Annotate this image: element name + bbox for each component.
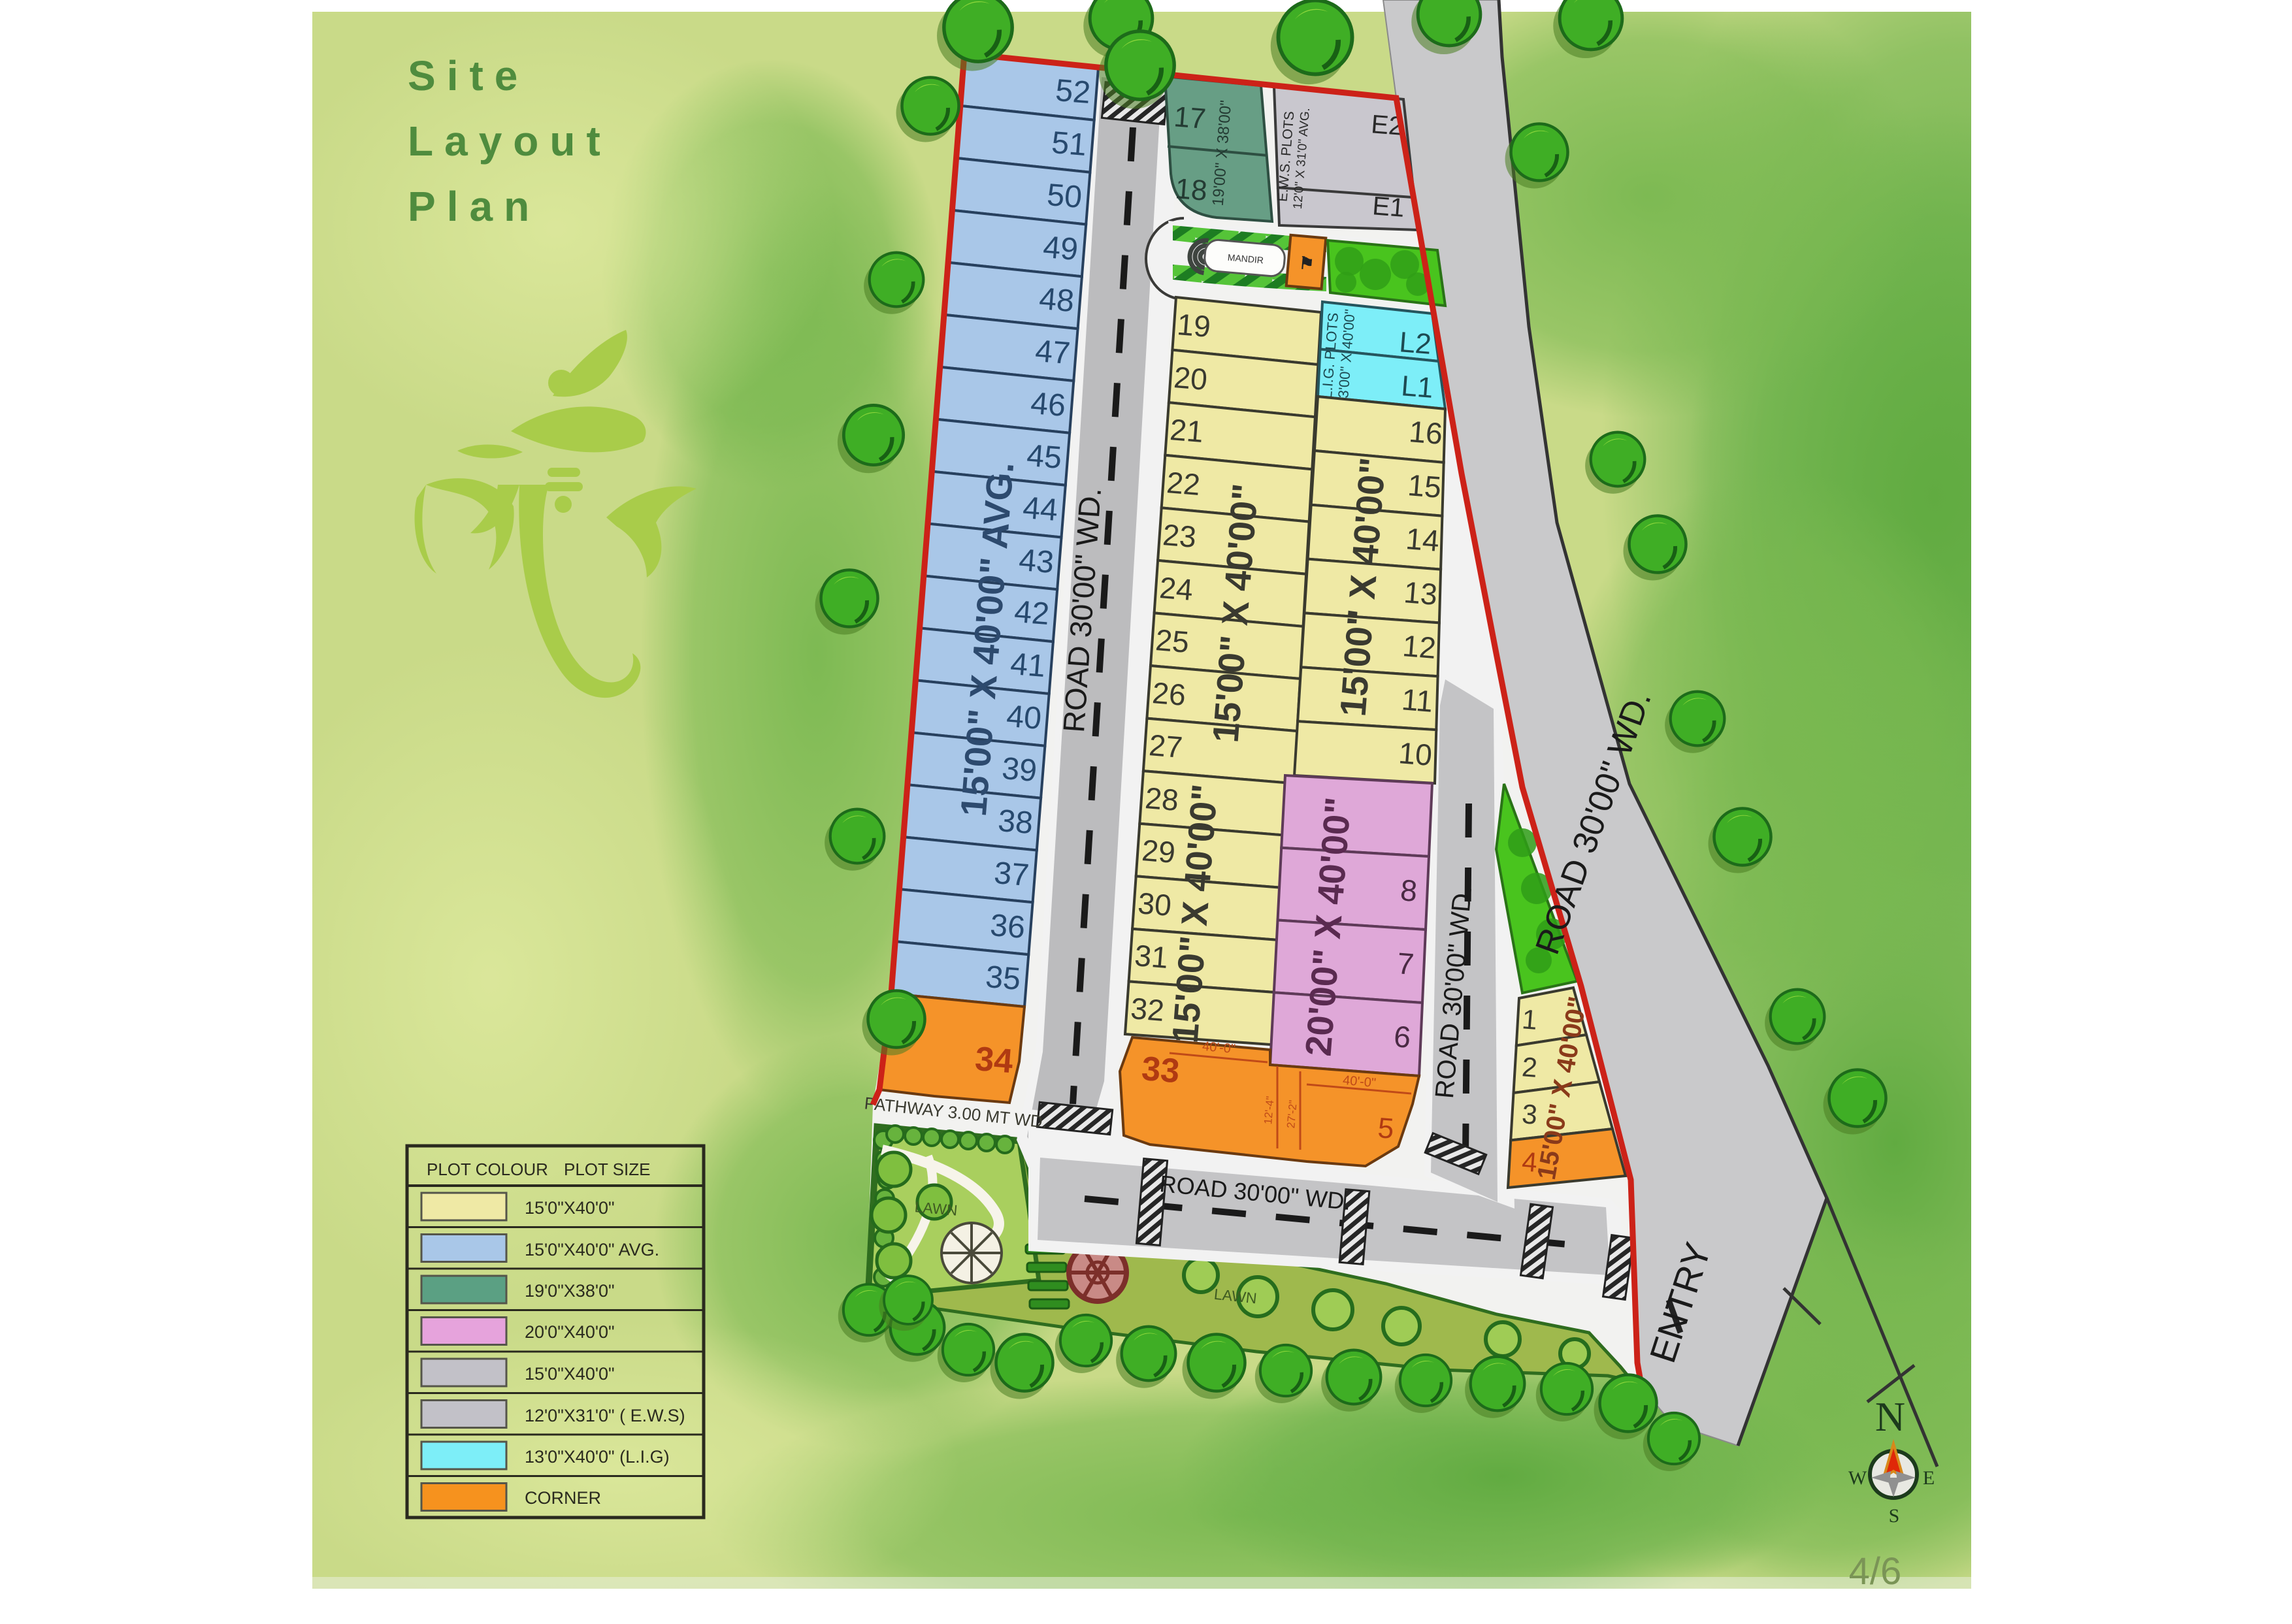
svg-text:44: 44 <box>1022 491 1059 528</box>
svg-text:39: 39 <box>1001 751 1038 788</box>
svg-text:37: 37 <box>993 856 1030 893</box>
svg-text:PLOT SIZE: PLOT SIZE <box>564 1160 650 1179</box>
svg-text:16: 16 <box>1408 414 1444 451</box>
svg-text:25: 25 <box>1154 623 1190 659</box>
svg-text:41: 41 <box>1009 647 1047 684</box>
svg-text:8: 8 <box>1399 873 1418 908</box>
svg-text:Site: Site <box>408 52 529 99</box>
svg-text:22: 22 <box>1166 465 1202 502</box>
svg-text:33: 33 <box>1140 1050 1181 1090</box>
svg-text:E1: E1 <box>1371 191 1405 223</box>
svg-text:19'0"X38'0": 19'0"X38'0" <box>525 1281 615 1301</box>
svg-text:43: 43 <box>1018 543 1055 580</box>
svg-text:10: 10 <box>1398 736 1433 772</box>
svg-text:24: 24 <box>1158 570 1194 607</box>
svg-text:Plan: Plan <box>408 183 540 230</box>
svg-text:L1: L1 <box>1400 370 1435 404</box>
svg-text:19: 19 <box>1176 307 1212 344</box>
svg-text:15'0"X40'0": 15'0"X40'0" <box>525 1364 615 1384</box>
svg-text:29: 29 <box>1141 833 1177 869</box>
svg-text:L2: L2 <box>1398 326 1433 361</box>
svg-text:34: 34 <box>974 1040 1014 1080</box>
svg-text:42: 42 <box>1013 594 1051 632</box>
svg-text:35: 35 <box>985 960 1022 997</box>
svg-text:38: 38 <box>997 804 1034 841</box>
svg-text:12'-4": 12'-4" <box>1262 1096 1277 1125</box>
svg-text:52: 52 <box>1055 73 1092 110</box>
svg-text:7: 7 <box>1396 946 1415 981</box>
svg-text:26: 26 <box>1151 675 1187 712</box>
svg-text:28: 28 <box>1144 781 1180 817</box>
svg-text:4/6: 4/6 <box>1849 1550 1902 1593</box>
svg-text:21: 21 <box>1169 412 1205 449</box>
svg-text:3: 3 <box>1521 1098 1539 1130</box>
svg-text:13: 13 <box>1403 575 1439 611</box>
svg-text:46: 46 <box>1030 386 1067 423</box>
svg-text:Layout: Layout <box>408 118 612 165</box>
svg-text:49: 49 <box>1042 230 1079 267</box>
svg-text:⚑: ⚑ <box>1298 253 1315 274</box>
svg-text:20'0"X40'0": 20'0"X40'0" <box>525 1322 615 1342</box>
svg-text:48: 48 <box>1038 282 1075 319</box>
svg-text:14: 14 <box>1405 521 1441 558</box>
svg-text:50: 50 <box>1046 178 1083 215</box>
svg-text:45: 45 <box>1026 438 1063 476</box>
svg-text:5: 5 <box>1377 1112 1395 1145</box>
svg-text:47: 47 <box>1034 334 1072 371</box>
svg-text:1: 1 <box>1521 1003 1539 1035</box>
svg-text:31: 31 <box>1134 938 1170 975</box>
svg-text:CORNER: CORNER <box>525 1488 601 1508</box>
svg-text:S: S <box>1889 1505 1900 1527</box>
svg-text:PLOT COLOUR: PLOT COLOUR <box>427 1160 548 1179</box>
svg-text:40: 40 <box>1006 699 1043 736</box>
svg-text:2: 2 <box>1521 1051 1539 1083</box>
svg-text:36: 36 <box>989 908 1026 945</box>
svg-text:15'0"X40'0": 15'0"X40'0" <box>525 1198 615 1218</box>
svg-text:13'0"X40'0" (L.I.G): 13'0"X40'0" (L.I.G) <box>525 1447 670 1467</box>
svg-text:N: N <box>1875 1393 1905 1440</box>
svg-text:27'-2": 27'-2" <box>1285 1099 1300 1129</box>
svg-text:W: W <box>1848 1467 1867 1489</box>
svg-text:6: 6 <box>1392 1019 1412 1054</box>
svg-text:30: 30 <box>1137 886 1173 922</box>
svg-text:23: 23 <box>1162 517 1198 554</box>
svg-text:15'0"X40'0" AVG.: 15'0"X40'0" AVG. <box>525 1240 659 1259</box>
svg-text:40'-0": 40'-0" <box>1202 1039 1236 1056</box>
svg-text:15: 15 <box>1407 468 1443 504</box>
svg-text:E: E <box>1923 1467 1935 1489</box>
svg-text:17: 17 <box>1173 101 1207 135</box>
svg-text:20: 20 <box>1173 360 1209 397</box>
svg-text:11: 11 <box>1400 682 1434 719</box>
svg-text:12: 12 <box>1401 628 1437 665</box>
svg-text:18: 18 <box>1174 172 1209 207</box>
svg-text:40'-0": 40'-0" <box>1342 1073 1377 1090</box>
svg-text:27: 27 <box>1148 728 1184 764</box>
svg-text:51: 51 <box>1051 125 1088 163</box>
svg-text:32: 32 <box>1130 991 1166 1028</box>
svg-text:12'0"X31'0" ( E.W.S): 12'0"X31'0" ( E.W.S) <box>525 1406 685 1425</box>
